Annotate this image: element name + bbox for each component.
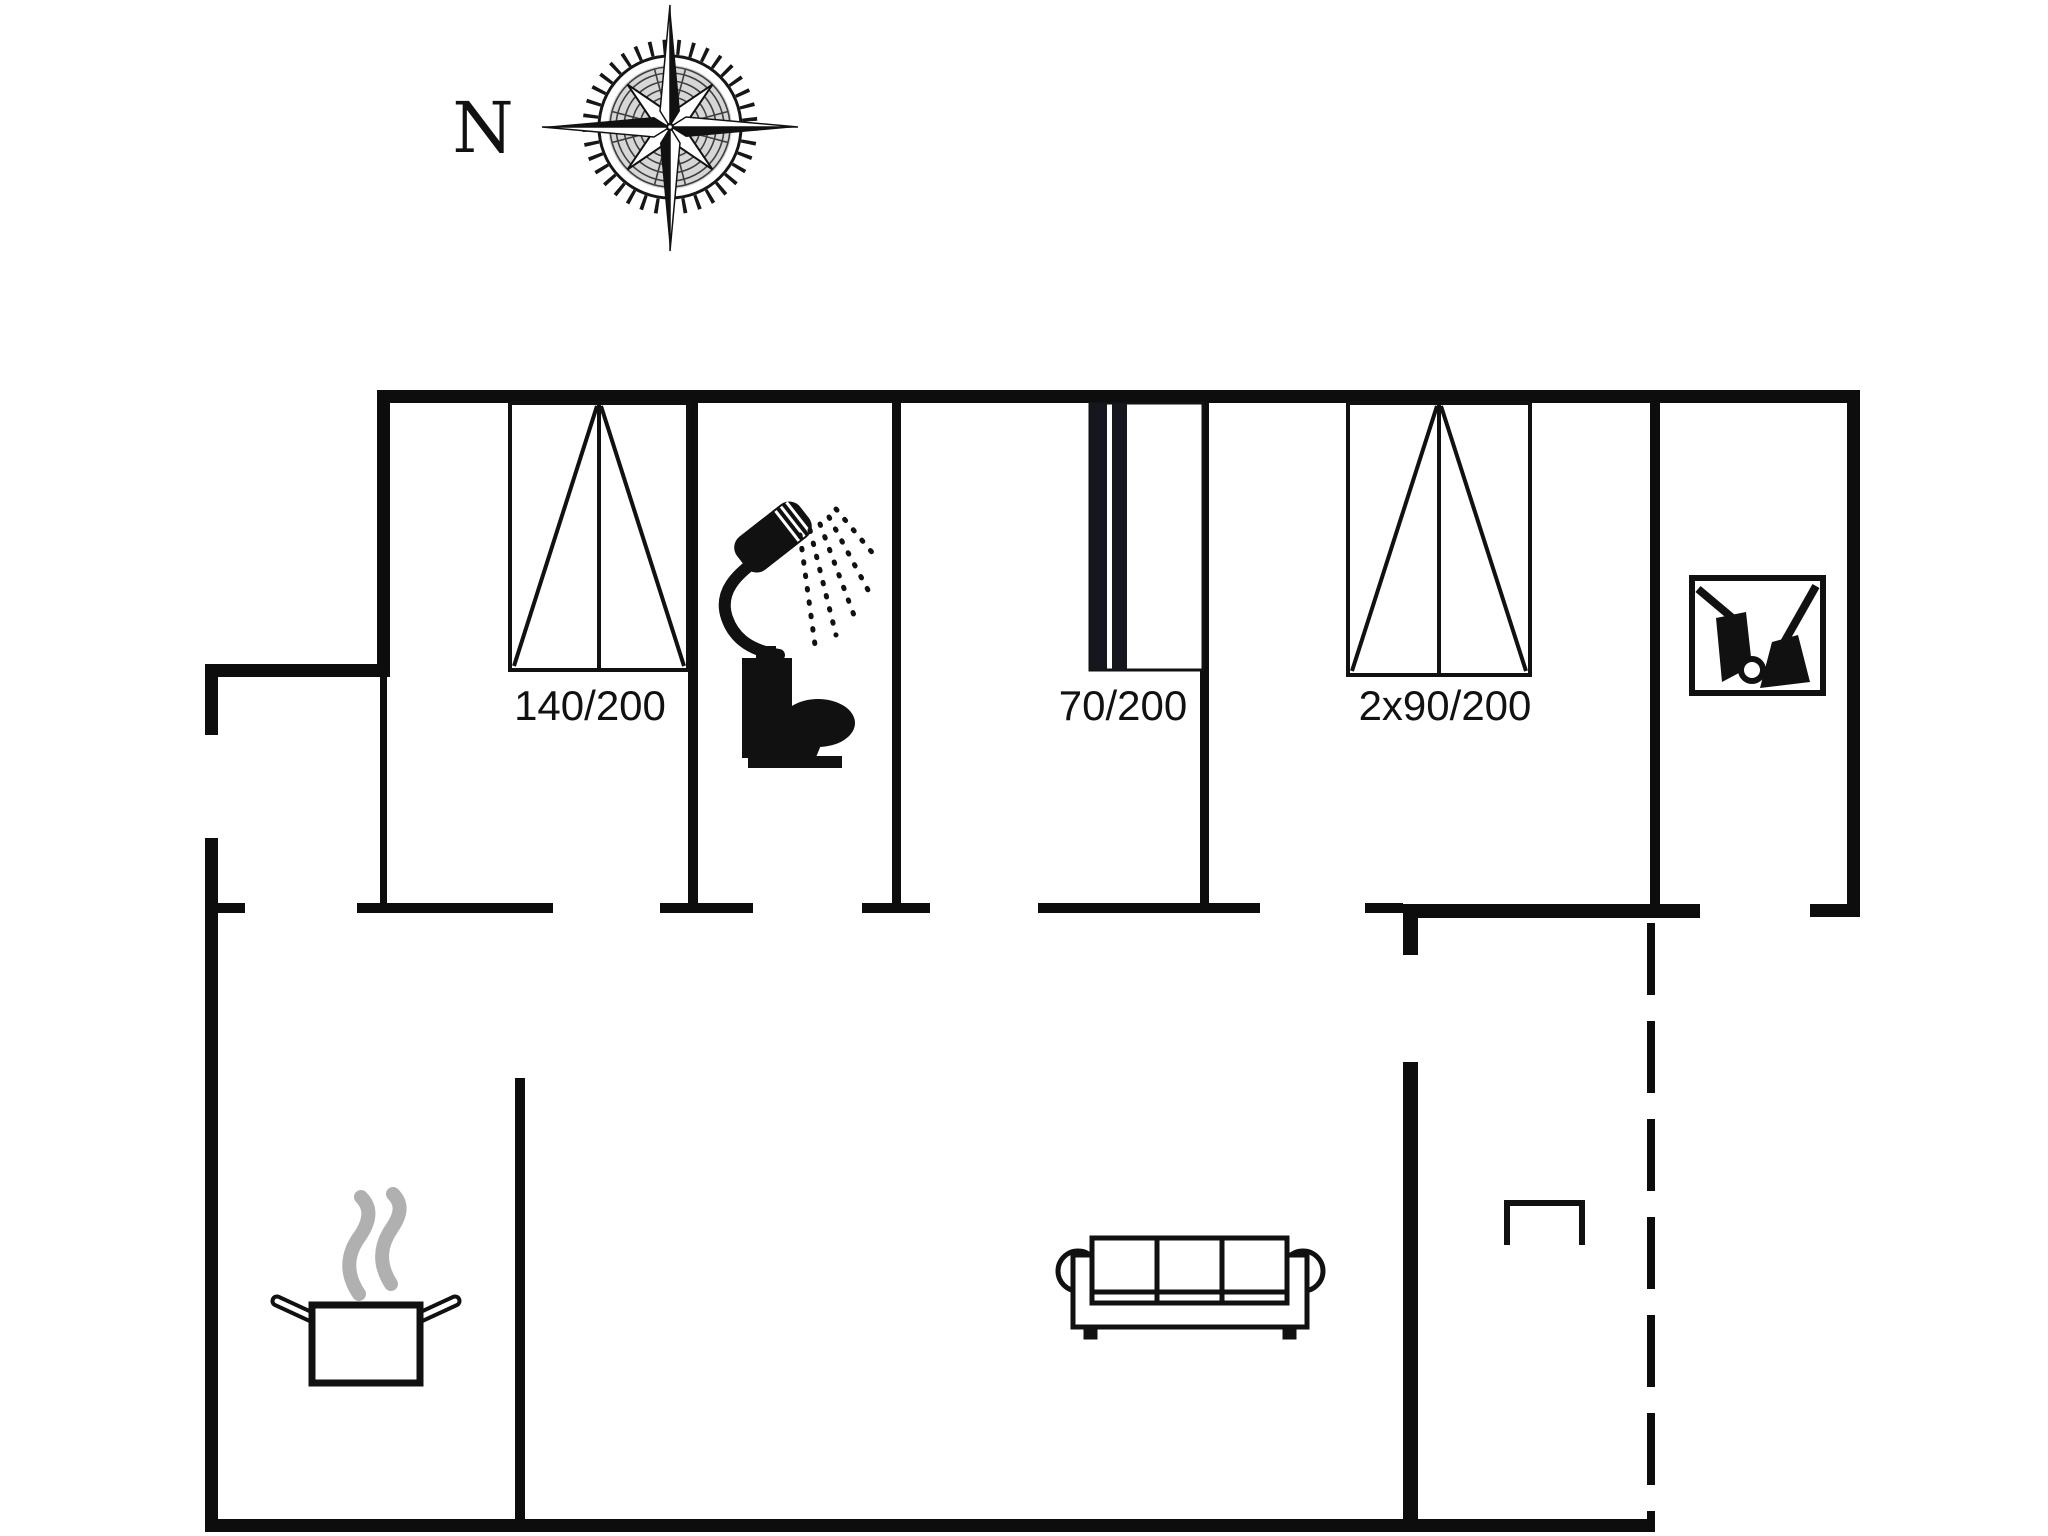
wall-segment xyxy=(357,903,553,913)
toilet-icon xyxy=(742,646,855,768)
wall-segment xyxy=(1403,1062,1418,1532)
wall-segment xyxy=(205,664,390,677)
wall-segment xyxy=(1847,390,1860,917)
cleaning-equipment-icon xyxy=(1692,578,1823,693)
wall-segment xyxy=(515,1078,525,1519)
floor-plan: N 140/200 xyxy=(0,0,2048,1536)
wall-segment xyxy=(205,1519,1652,1532)
bed-2x90x200 xyxy=(1348,403,1530,675)
cooking-pot-icon xyxy=(277,1194,455,1383)
compass-rose-icon xyxy=(542,5,798,251)
wall-segment xyxy=(205,838,218,1532)
wall-segment xyxy=(377,390,390,677)
wardrobe-bracket-icon xyxy=(1507,1203,1582,1245)
bed-140x200-label: 140/200 xyxy=(514,682,666,729)
wall-segment xyxy=(1810,904,1860,917)
bed-2x90x200-label: 2x90/200 xyxy=(1359,682,1532,729)
wall-segment xyxy=(1650,403,1660,917)
wall-segment xyxy=(660,903,753,913)
north-label: N xyxy=(452,87,513,169)
wall-segment xyxy=(218,903,245,913)
shower-icon xyxy=(725,496,875,655)
wall-segment xyxy=(892,403,901,913)
wall-segment xyxy=(205,664,218,735)
sofa-icon xyxy=(1058,1238,1323,1337)
floor-plan-page: N 140/200 xyxy=(0,0,2048,1536)
wall-segment xyxy=(1403,917,1418,955)
bed-70x200-label: 70/200 xyxy=(1059,682,1187,729)
wall-segment xyxy=(1038,903,1260,913)
walls xyxy=(205,390,1860,1532)
bed-140x200 xyxy=(510,403,688,670)
wall-segment xyxy=(380,677,387,913)
bed-70x200 xyxy=(1090,403,1203,670)
wall-segment xyxy=(1365,903,1403,913)
